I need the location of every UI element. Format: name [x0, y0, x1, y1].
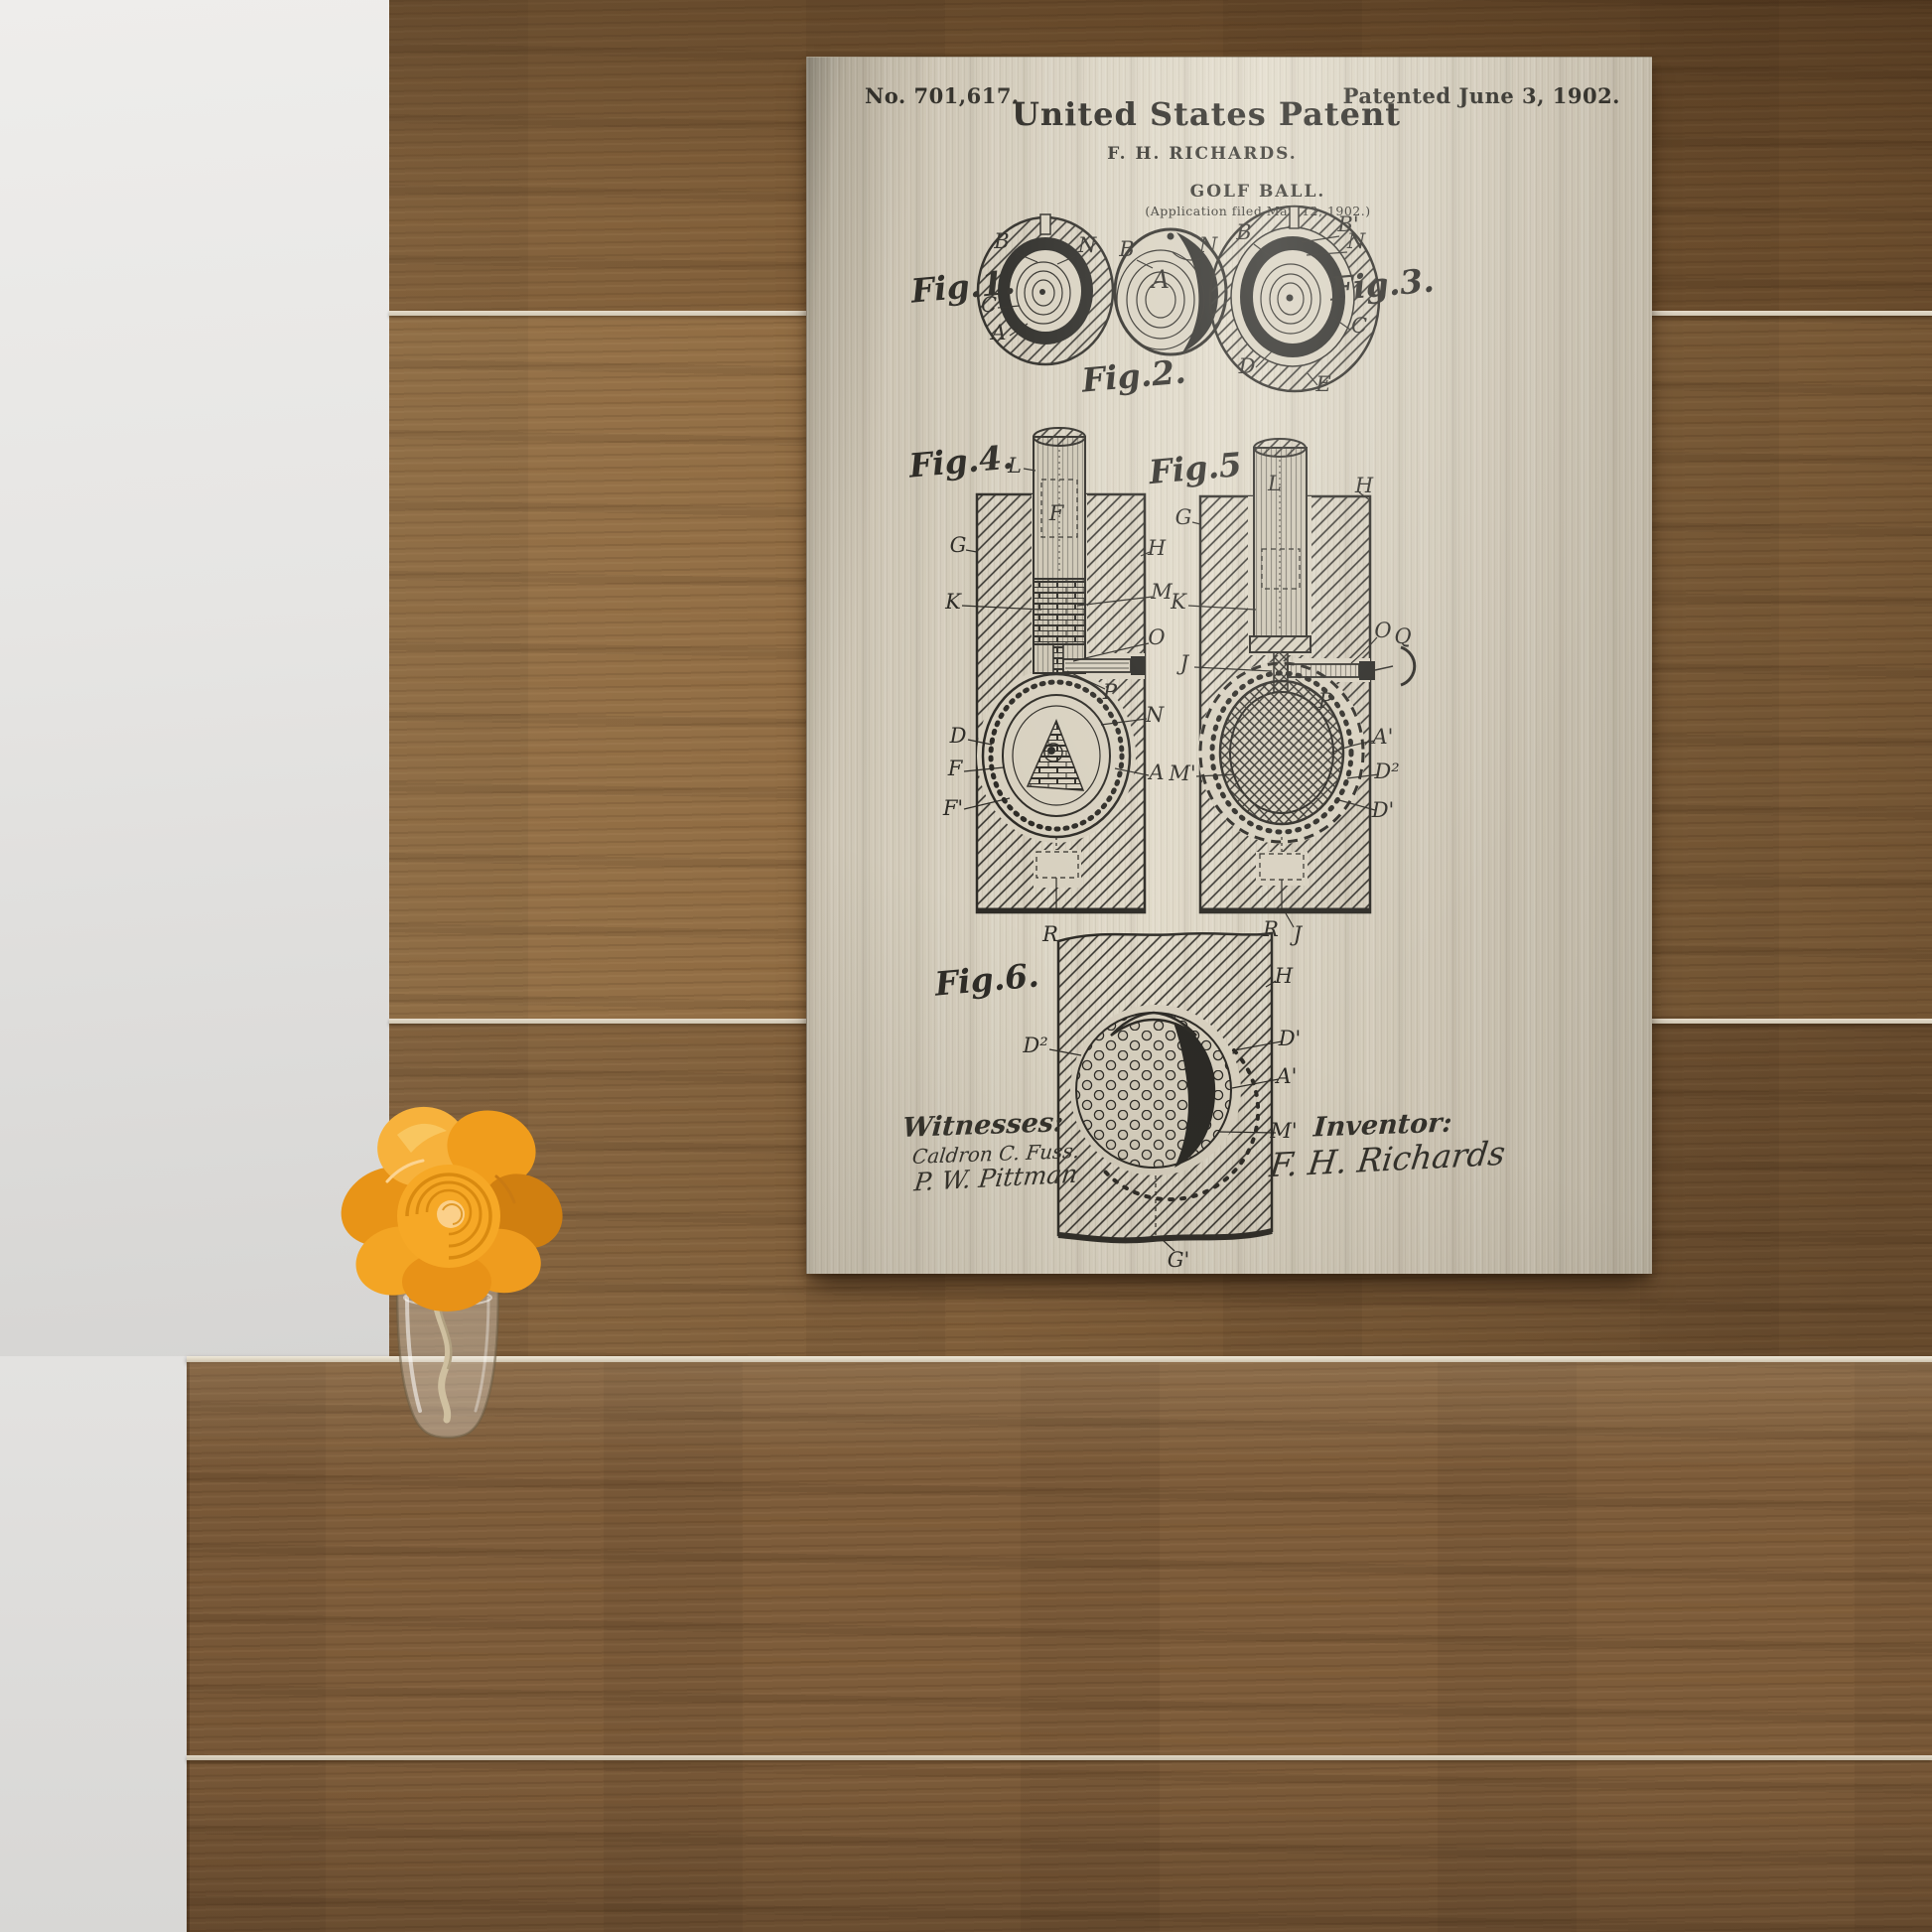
fig4-label-P: P — [1102, 680, 1118, 704]
fig5-label-L: L — [1267, 472, 1282, 495]
fig5-label-A-prime: A' — [1371, 725, 1394, 749]
fig4-caption: Fig.4. — [906, 438, 1015, 485]
counter-plank-seam — [187, 1755, 1932, 1760]
fig1-label-N: N — [1077, 233, 1097, 257]
patent-subject: GOLF BALL. — [1190, 182, 1326, 202]
fig1-label-A: A — [989, 321, 1006, 345]
fig5-label-O: O — [1374, 619, 1391, 642]
fig4-label-F: F — [947, 757, 964, 780]
fig4-label-D: D — [949, 724, 967, 748]
fig6-label-H: H — [1274, 964, 1294, 988]
fig6-label-A-prime: A' — [1275, 1064, 1298, 1088]
fig4-label-H: H — [1147, 536, 1167, 560]
patent-figures-drawing: Fig.1. B N C A Fig.2. B N A — [807, 58, 1652, 1274]
fig4-label-O: O — [1148, 625, 1165, 649]
white-wall-lower — [0, 1356, 187, 1932]
fig1-drawing — [978, 214, 1113, 364]
fig2-label-B: B — [1118, 237, 1134, 261]
fig6-leader-lines — [1049, 981, 1282, 1251]
scene-photo: { "scene": { "setting": "Brushed-metal g… — [0, 0, 1932, 1932]
fig4-label-M: M — [1150, 580, 1173, 604]
fig3-label-N: N — [1346, 229, 1366, 253]
fig6-label-D2: D² — [1022, 1034, 1047, 1057]
patent-inventor-name: F. H. RICHARDS. — [1107, 144, 1297, 164]
fig5-label-D2: D² — [1373, 759, 1399, 783]
fig4-label-G: G — [950, 533, 967, 557]
fig2-drawing — [1115, 229, 1226, 354]
fig6-drawing — [1049, 933, 1282, 1251]
flower-vase — [328, 1087, 576, 1454]
fig5-label-J2: J — [1290, 922, 1304, 946]
patent-application-line: (Application filed Mar. 12, 1902.) — [1145, 204, 1370, 218]
fig5-label-H: H — [1354, 474, 1374, 497]
fig4-label-R: R — [1041, 922, 1058, 946]
fig2-label-N: N — [1198, 233, 1218, 257]
witnesses-heading: Witnesses: — [901, 1107, 1064, 1144]
fig6-label-M-prime: M' — [1269, 1119, 1297, 1143]
fig5-label-R: R — [1262, 917, 1279, 941]
fig5-drawing — [1188, 439, 1415, 927]
fig4-label-K: K — [944, 590, 962, 614]
fig2-caption: Fig.2. — [1079, 352, 1187, 400]
orange-flower — [328, 1100, 576, 1311]
fig2-label-A: A — [1150, 265, 1170, 294]
patent-title: United States Patent — [1012, 95, 1401, 133]
fig3-label-C: C — [1351, 314, 1367, 338]
fig5-label-D-prime: D' — [1371, 798, 1395, 822]
fig5-leader-lines — [1188, 492, 1379, 927]
fig1-label-C: C — [981, 293, 997, 317]
fig3-label-E: E — [1314, 372, 1330, 396]
fig5-label-M-prime: M' — [1168, 761, 1195, 785]
fig3-label-D: D — [1238, 354, 1256, 378]
fig2-leader-lines — [1137, 252, 1202, 268]
fig5-label-J: J — [1176, 651, 1190, 675]
fig4-label-L: L — [1007, 454, 1022, 478]
fig6-caption: Fig.6. — [932, 956, 1040, 1004]
patent-number: No. 701,617. — [865, 83, 1020, 108]
fig1-label-B: B — [993, 229, 1009, 253]
fig4-leader-lines — [962, 469, 1153, 809]
fig3-label-B: B — [1235, 220, 1251, 244]
fig6-label-G-prime: G' — [1168, 1248, 1190, 1272]
fig3-drawing — [1210, 207, 1379, 391]
fig4-label-F-cylinder: F — [1048, 501, 1065, 525]
fig3-caption: Fig.3. — [1327, 261, 1436, 309]
fig4-label-F-prime: F' — [942, 796, 963, 820]
fig3-leader-lines — [1254, 236, 1350, 385]
fig5-label-Q: Q — [1394, 624, 1411, 648]
fig6-label-D-prime: D' — [1278, 1027, 1302, 1050]
fig1-caption: Fig.1. — [908, 263, 1017, 311]
fig4-label-N: N — [1145, 703, 1165, 727]
fig5-label-P: P — [1317, 689, 1333, 713]
fig4-label-A: A — [1147, 760, 1164, 784]
patent-print-canvas: No. 701,617. Patented June 3, 1902. Unit… — [806, 57, 1652, 1274]
fig5-label-K: K — [1170, 590, 1187, 614]
fig4-drawing — [962, 428, 1153, 912]
fig1-leader-lines — [998, 252, 1075, 336]
fig5-caption: Fig.5 — [1147, 445, 1244, 491]
fig5-label-G: G — [1175, 505, 1192, 529]
inventor-signature: F. H. Richards — [1268, 1134, 1508, 1185]
